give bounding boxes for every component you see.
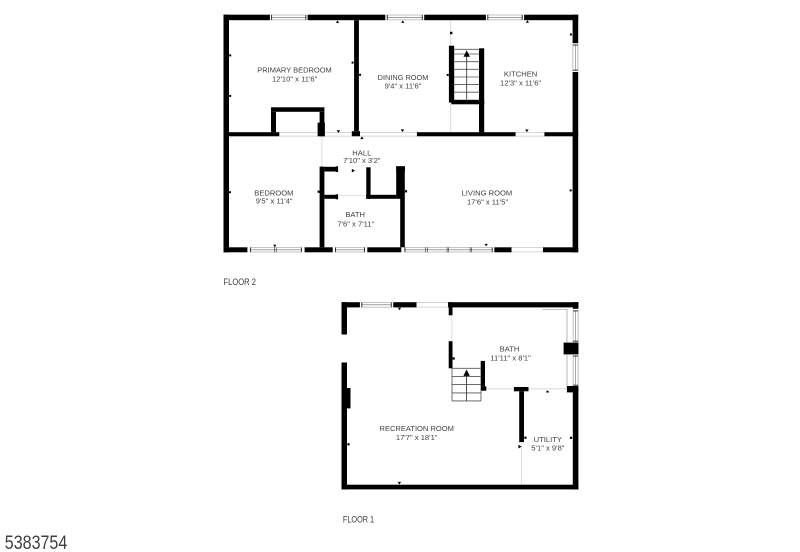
svg-text:9'4" x 11'6": 9'4" x 11'6" (385, 81, 422, 90)
svg-text:9'5" x 11'4": 9'5" x 11'4" (256, 196, 293, 205)
svg-text:17'7" x 18'1": 17'7" x 18'1" (396, 433, 438, 442)
svg-text:BATH: BATH (345, 210, 365, 219)
svg-text:LIVING ROOM: LIVING ROOM (462, 188, 513, 197)
svg-text:12'3" x 11'6": 12'3" x 11'6" (500, 78, 541, 87)
svg-text:5383754: 5383754 (5, 532, 68, 552)
svg-text:12'10" x 11'6": 12'10" x 11'6" (272, 74, 318, 83)
svg-text:17'6" x 11'5": 17'6" x 11'5" (467, 197, 508, 206)
svg-text:11'11" x 8'1": 11'11" x 8'1" (490, 353, 531, 362)
svg-text:5'1" x 9'8": 5'1" x 9'8" (531, 444, 565, 453)
svg-text:KITCHEN: KITCHEN (504, 69, 537, 78)
svg-text:BATH: BATH (500, 344, 520, 353)
svg-text:7'10" x 3'2": 7'10" x 3'2" (343, 156, 381, 165)
svg-text:7'6" x 7'11": 7'6" x 7'11" (337, 219, 374, 228)
svg-text:PRIMARY BEDROOM: PRIMARY BEDROOM (257, 65, 332, 74)
svg-text:FLOOR 2: FLOOR 2 (224, 277, 257, 287)
svg-text:FLOOR 1: FLOOR 1 (343, 514, 374, 524)
svg-text:RECREATION ROOM: RECREATION ROOM (380, 424, 454, 433)
